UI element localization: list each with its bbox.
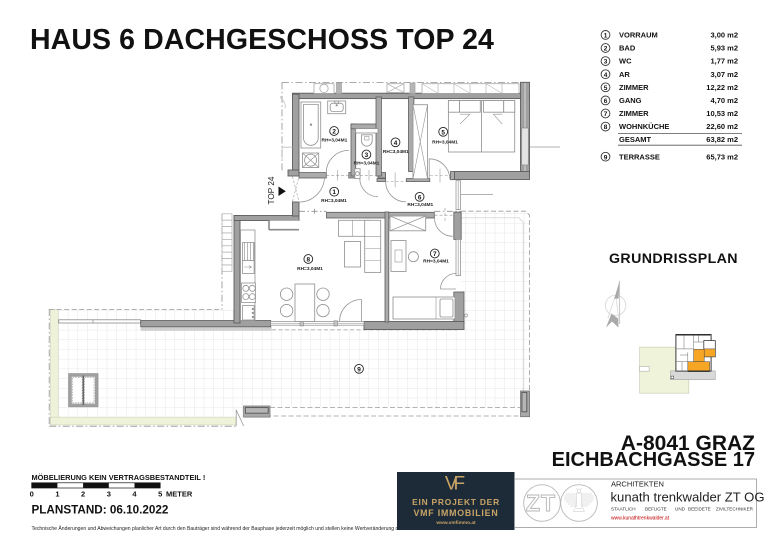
svg-text:MÖBELIERUNG KEIN VERTRAGSBESTA: MÖBELIERUNG KEIN VERTRAGSBESTANDTEIL ! bbox=[32, 473, 206, 482]
svg-text:6: 6 bbox=[418, 194, 422, 201]
svg-text:4: 4 bbox=[604, 72, 608, 79]
svg-text:EICHBACHGASSE 17: EICHBACHGASSE 17 bbox=[552, 449, 755, 471]
svg-text:GRUNDRISSPLAN: GRUNDRISSPLAN bbox=[609, 251, 738, 267]
svg-text:RH=3,04M1: RH=3,04M1 bbox=[297, 266, 323, 272]
svg-text:8: 8 bbox=[307, 257, 311, 264]
svg-text:ZIVILTECHNIKER: ZIVILTECHNIKER bbox=[716, 507, 754, 512]
svg-text:2: 2 bbox=[604, 46, 608, 53]
svg-text:65,73 m2: 65,73 m2 bbox=[706, 152, 738, 161]
svg-text:5: 5 bbox=[441, 129, 445, 136]
svg-text:UND: UND bbox=[675, 507, 686, 512]
svg-text:1,77 m2: 1,77 m2 bbox=[710, 57, 738, 66]
svg-text:ARCHITEKTEN: ARCHITEKTEN bbox=[611, 480, 664, 489]
svg-text:WOHNKÜCHE: WOHNKÜCHE bbox=[619, 122, 669, 131]
svg-text:HAUS 6 DACHGESCHOSS TOP 24: HAUS 6 DACHGESCHOSS TOP 24 bbox=[30, 24, 494, 56]
svg-text:WC: WC bbox=[619, 57, 632, 66]
svg-text:0: 0 bbox=[30, 490, 34, 499]
svg-text:8: 8 bbox=[604, 124, 608, 131]
svg-text:2: 2 bbox=[81, 490, 85, 499]
svg-text:BAD: BAD bbox=[619, 44, 636, 53]
svg-text:ZIMMER: ZIMMER bbox=[619, 109, 649, 118]
svg-text:METER: METER bbox=[166, 490, 193, 499]
svg-text:BEFUGTE: BEFUGTE bbox=[645, 507, 667, 512]
svg-text:www.vmfimmo.at: www.vmfimmo.at bbox=[435, 520, 476, 526]
svg-text:RH=3,04M1: RH=3,04M1 bbox=[321, 198, 347, 204]
svg-text:VMF IMMOBILIEN: VMF IMMOBILIEN bbox=[414, 508, 499, 518]
svg-text:RH=3,04M1: RH=3,04M1 bbox=[423, 259, 449, 265]
svg-text:1: 1 bbox=[55, 490, 59, 499]
svg-text:3,07 m2: 3,07 m2 bbox=[710, 70, 738, 79]
svg-text:RH=3,04M1: RH=3,04M1 bbox=[354, 161, 380, 167]
svg-text:GANG: GANG bbox=[619, 96, 642, 105]
svg-text:VF: VF bbox=[445, 474, 465, 495]
svg-text:4: 4 bbox=[394, 140, 398, 147]
svg-text:RH=3,04M1: RH=3,04M1 bbox=[432, 140, 458, 146]
svg-text:TERRASSE: TERRASSE bbox=[619, 152, 660, 161]
svg-text:63,82 m2: 63,82 m2 bbox=[706, 135, 738, 144]
svg-text:3: 3 bbox=[365, 152, 369, 159]
svg-text:BEEIDETE: BEEIDETE bbox=[688, 507, 711, 512]
svg-text:RH=3,04M1: RH=3,04M1 bbox=[383, 149, 409, 155]
svg-text:EIN PROJEKT DER: EIN PROJEKT DER bbox=[412, 497, 500, 507]
svg-text:10,53 m2: 10,53 m2 bbox=[706, 109, 738, 118]
svg-text:Technische Änderungen und Abwe: Technische Änderungen und Abweichungen p… bbox=[32, 525, 405, 532]
svg-text:AR: AR bbox=[619, 70, 630, 79]
svg-text:TOP 24: TOP 24 bbox=[267, 176, 276, 204]
svg-text:1: 1 bbox=[332, 189, 336, 196]
svg-text:ZIMMER: ZIMMER bbox=[619, 83, 649, 92]
svg-text:22,60 m2: 22,60 m2 bbox=[706, 122, 738, 131]
svg-text:5: 5 bbox=[158, 490, 162, 499]
svg-text:9: 9 bbox=[604, 154, 608, 161]
svg-text:VORRAUM: VORRAUM bbox=[619, 31, 658, 40]
svg-text:5: 5 bbox=[604, 85, 608, 92]
svg-text:9: 9 bbox=[357, 366, 361, 373]
svg-text:1: 1 bbox=[604, 33, 608, 40]
svg-text:12,22 m2: 12,22 m2 bbox=[706, 83, 738, 92]
svg-text:www.kunathtrenkwalder.at: www.kunathtrenkwalder.at bbox=[611, 516, 670, 522]
svg-text:3: 3 bbox=[107, 490, 111, 499]
svg-text:4,70 m2: 4,70 m2 bbox=[710, 96, 738, 105]
svg-text:3,00 m2: 3,00 m2 bbox=[710, 31, 738, 40]
svg-text:7: 7 bbox=[433, 251, 437, 258]
svg-text:STAATLICH: STAATLICH bbox=[611, 507, 636, 512]
svg-text:kunath trenkwalder ZT OG: kunath trenkwalder ZT OG bbox=[611, 490, 765, 505]
svg-text:RH=3,04M1: RH=3,04M1 bbox=[322, 138, 348, 144]
svg-text:5,93 m2: 5,93 m2 bbox=[710, 44, 738, 53]
svg-text:7: 7 bbox=[604, 111, 608, 118]
svg-text:3: 3 bbox=[604, 59, 608, 66]
svg-text:ZT: ZT bbox=[526, 490, 556, 516]
svg-text:RH=3,04M1: RH=3,04M1 bbox=[407, 202, 433, 208]
svg-text:PLANSTAND: 06.10.2022: PLANSTAND: 06.10.2022 bbox=[32, 504, 169, 517]
svg-text:6: 6 bbox=[604, 98, 608, 105]
svg-text:2: 2 bbox=[332, 129, 336, 136]
svg-text:GESAMT: GESAMT bbox=[619, 135, 652, 144]
